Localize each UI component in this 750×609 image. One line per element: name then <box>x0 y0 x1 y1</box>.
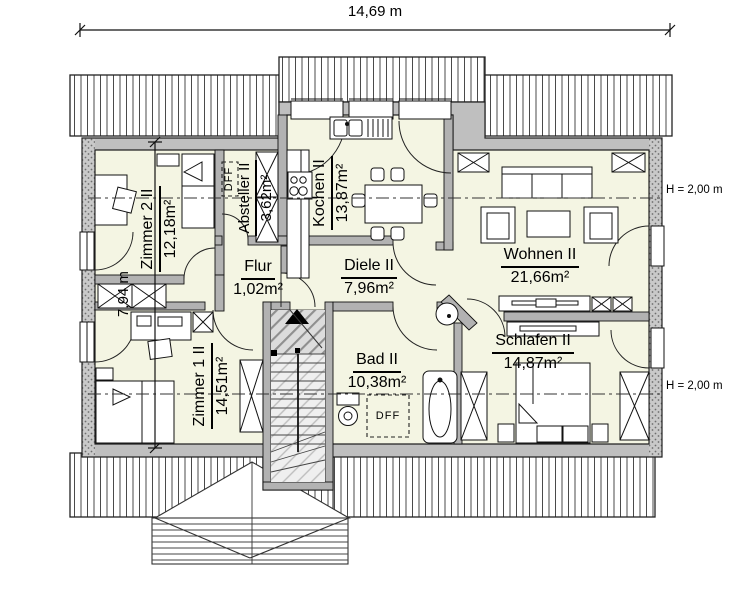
bed-schlafen <box>516 363 590 443</box>
door-schlafen-balcony <box>651 328 664 368</box>
washbasin <box>436 303 458 325</box>
room-name: Kochen II <box>311 156 333 230</box>
dimension-width-label: 14,69 m <box>300 3 450 21</box>
coffee-table <box>527 211 570 237</box>
room-area: 1,02m² <box>213 280 303 300</box>
door-wohnen-balcony <box>651 226 664 266</box>
window-zimmer2 <box>80 232 94 270</box>
room-label-bad: Bad II 10,38m² <box>322 351 432 393</box>
window-zimmer1 <box>80 322 94 362</box>
room-label-zimmer1: Zimmer 1 II 14,51m² <box>191 311 231 461</box>
floor-plan: 14,69 m 7,94 m H = 2,00 m H = 2,00 m Zim… <box>0 0 750 609</box>
room-area: 13,87m² <box>333 118 353 268</box>
height-marker-lower: H = 2,00 m <box>666 380 736 394</box>
room-label-zimmer2: Zimmer 2 II 12,18m² <box>139 154 179 304</box>
floor-plan-drawing <box>0 0 750 609</box>
room-area: 12,18m² <box>161 154 181 304</box>
nightstand-right <box>592 424 608 442</box>
armchair-left <box>481 207 515 243</box>
room-label-schlafen: Schlafen II 14,87m² <box>463 332 603 374</box>
room-label-absteller: Absteller II 3,62m² <box>236 123 276 273</box>
sidetable-zimmer1 <box>96 368 113 380</box>
stairwell <box>271 309 325 482</box>
room-area: 7,96m² <box>314 279 424 299</box>
room-label-wohnen: Wohnen II 21,66m² <box>475 246 605 288</box>
room-name: Diele II <box>341 257 397 279</box>
dresser-detail <box>520 326 576 331</box>
wardrobe-zimmer1 <box>240 360 263 432</box>
roof-eaves-bottom <box>70 453 655 517</box>
room-area: 14,87m² <box>463 354 603 374</box>
bed-zimmer1 <box>96 381 174 443</box>
room-label-flur: Flur 1,02m² <box>213 258 303 300</box>
dimension-height-label: 7,94 m <box>115 264 135 324</box>
room-name: Bad II <box>353 351 401 373</box>
room-label-kochen: Kochen II 13,87m² <box>311 118 351 268</box>
dff-label-absteller: DFF <box>223 157 237 201</box>
dormer-windows <box>291 99 451 119</box>
wardrobe-schlafen-right <box>620 372 649 440</box>
room-area: 3,62m² <box>257 123 276 273</box>
room-name: Absteller II <box>236 160 257 237</box>
room-label-diele: Diele II 7,96m² <box>314 257 424 299</box>
bed-zimmer2 <box>182 154 214 228</box>
room-name: Flur <box>241 258 275 280</box>
room-area: 10,38m² <box>322 373 432 393</box>
room-name: Zimmer 2 II <box>139 186 161 273</box>
room-area: 14,51m² <box>213 311 233 461</box>
room-name: Schlafen II <box>492 332 574 354</box>
nightstand-left <box>498 424 514 442</box>
room-name: Zimmer 1 II <box>191 343 213 430</box>
room-area: 21,66m² <box>475 268 605 288</box>
wardrobe-schlafen-left <box>461 372 487 440</box>
armchair-right <box>584 207 618 243</box>
dff-label-bad: DFF <box>368 410 408 423</box>
sofa <box>502 167 592 198</box>
height-marker-upper: H = 2,00 m <box>666 184 736 198</box>
room-name: Wohnen II <box>501 246 580 268</box>
